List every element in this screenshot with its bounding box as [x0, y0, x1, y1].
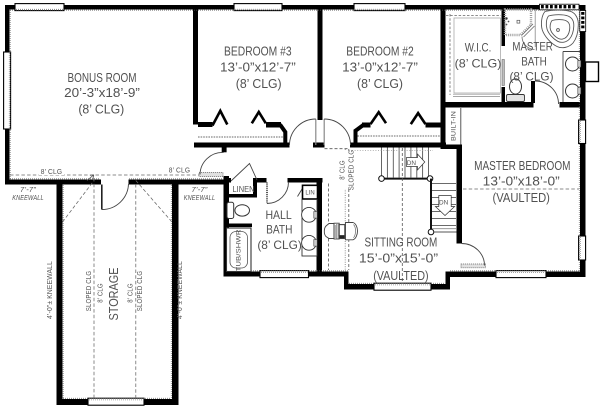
svg-text:(8’ CLG): (8’ CLG) [510, 70, 554, 84]
svg-text:KNEEWALL: KNEEWALL [184, 193, 216, 202]
svg-text:(8’ CLG): (8’ CLG) [236, 76, 282, 91]
svg-text:(VAULTED): (VAULTED) [493, 190, 550, 205]
svg-text:BATH: BATH [521, 54, 547, 68]
svg-text:(8’ CLG): (8’ CLG) [357, 76, 403, 91]
svg-text:(8’ CLG): (8’ CLG) [455, 56, 502, 70]
svg-text:KNEEWALL: KNEEWALL [12, 193, 44, 202]
svg-text:(8’ CLG): (8’ CLG) [257, 238, 302, 252]
svg-text:BUILT-IN: BUILT-IN [451, 111, 458, 141]
svg-text:HALL: HALL [265, 208, 292, 222]
svg-text:4’-0”± KNEEWALL: 4’-0”± KNEEWALL [175, 261, 184, 319]
svg-text:BEDROOM #3: BEDROOM #3 [224, 44, 292, 59]
svg-text:8’ CLG: 8’ CLG [169, 166, 191, 175]
svg-text:13’-0”x12’-7”: 13’-0”x12’-7” [342, 60, 418, 75]
svg-text:BATH: BATH [266, 223, 292, 237]
svg-text:MASTER: MASTER [512, 40, 552, 54]
svg-text:SLOPED CLG: SLOPED CLG [84, 271, 93, 312]
svg-text:DN: DN [439, 200, 449, 207]
svg-text:13’-0”x12’-7”: 13’-0”x12’-7” [220, 60, 296, 75]
svg-text:MASTER BEDROOM: MASTER BEDROOM [474, 158, 570, 173]
svg-text:BONUS ROOM: BONUS ROOM [68, 70, 137, 85]
svg-text:LIN: LIN [305, 191, 314, 197]
svg-text:LINEN: LINEN [233, 185, 255, 194]
svg-text:DN: DN [407, 160, 417, 167]
svg-text:8’ CLG: 8’ CLG [96, 283, 105, 303]
svg-text:BEDROOM #2: BEDROOM #2 [346, 44, 414, 59]
svg-text:13’-0”x18’-0”: 13’-0”x18’-0” [483, 173, 560, 188]
svg-text:TUB/SHWR: TUB/SHWR [236, 229, 243, 271]
svg-text:(8’ CLG): (8’ CLG) [78, 102, 124, 117]
svg-text:W.I.C.: W.I.C. [465, 41, 492, 55]
svg-text:SLOPED CLG: SLOPED CLG [347, 150, 356, 191]
svg-text:8’ CLG: 8’ CLG [338, 160, 347, 180]
svg-text:SLOPED CLG: SLOPED CLG [135, 271, 144, 312]
svg-text:SITTING ROOM: SITTING ROOM [365, 235, 438, 250]
svg-text:15’-0”x15’-0”: 15’-0”x15’-0” [359, 251, 438, 266]
svg-text:20’-3”x18’-9”: 20’-3”x18’-9” [64, 85, 140, 100]
svg-text:(VAULTED): (VAULTED) [373, 268, 428, 283]
svg-text:STORAGE: STORAGE [107, 268, 121, 321]
svg-text:4’-0”± KNEEWALL: 4’-0”± KNEEWALL [45, 261, 54, 319]
svg-text:8’ CLG: 8’ CLG [41, 167, 63, 176]
svg-text:8’ CLG: 8’ CLG [126, 283, 135, 303]
